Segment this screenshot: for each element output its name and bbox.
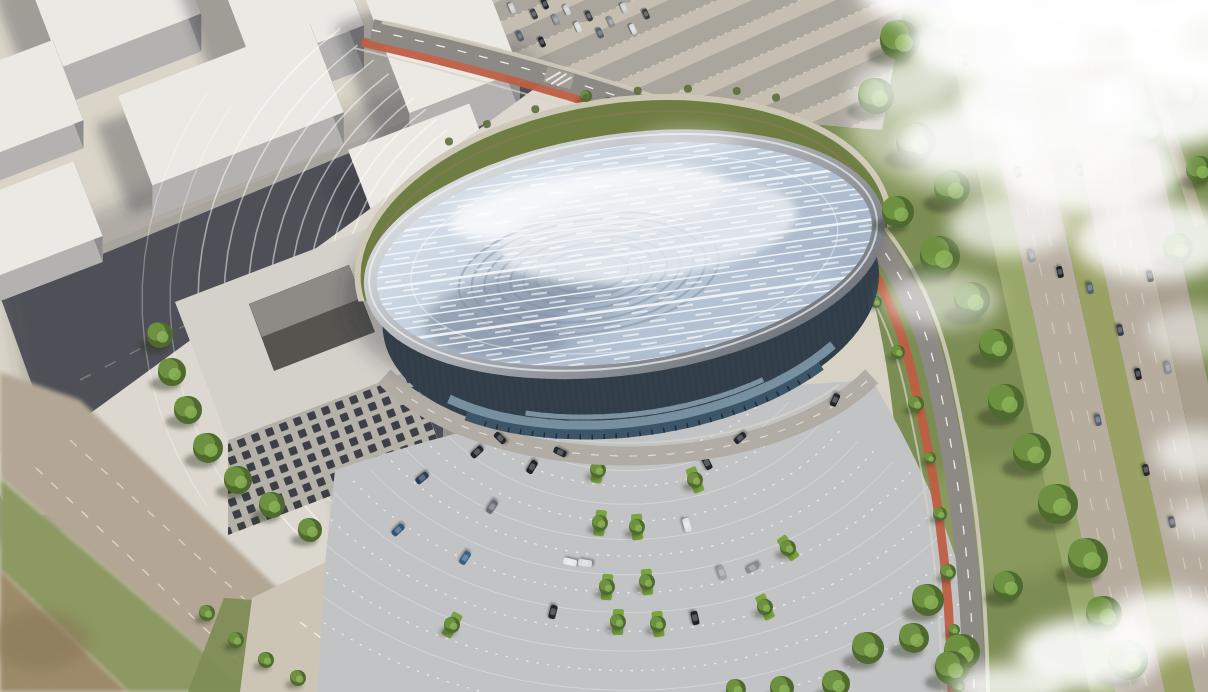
circle-shape (169, 368, 182, 381)
architectural-rendering (0, 0, 1208, 692)
circle-shape (910, 634, 924, 648)
circle-shape (864, 643, 878, 657)
circle-shape (204, 444, 218, 458)
cloud (884, 272, 1000, 328)
circle-shape (1083, 552, 1101, 570)
circle-shape (234, 638, 241, 645)
circle-shape (763, 605, 770, 612)
circle-shape (605, 585, 612, 592)
circle-shape (296, 676, 303, 683)
circle-shape (946, 570, 953, 577)
circle-shape (935, 250, 953, 268)
circle-shape (875, 300, 880, 305)
circle-shape (307, 526, 318, 537)
circle-shape (1027, 446, 1044, 463)
circle-shape (693, 478, 700, 485)
circle-shape (833, 680, 846, 692)
circle-shape (635, 525, 642, 532)
circle-shape (992, 341, 1007, 356)
circle-shape (894, 207, 908, 221)
cloud (948, 196, 1072, 256)
circle-shape (616, 620, 623, 627)
circle-shape (269, 501, 281, 513)
circle-shape (1004, 582, 1018, 596)
circle-shape (953, 628, 958, 633)
circle-shape (264, 658, 271, 665)
circle-shape (914, 402, 921, 409)
circle-shape (656, 622, 663, 629)
cloud (636, 126, 740, 158)
circle-shape (1002, 397, 1018, 413)
circle-shape (645, 580, 652, 587)
circle-shape (598, 521, 605, 528)
rendering-stage (0, 0, 1208, 692)
circle-shape (924, 595, 938, 609)
circle-shape (185, 406, 198, 419)
circle-shape (157, 331, 169, 343)
circle-shape (786, 546, 793, 553)
cloud (850, 40, 1150, 200)
circle-shape (896, 350, 902, 356)
circle-shape (929, 456, 934, 461)
circle-shape (235, 476, 248, 489)
circle-shape (205, 611, 212, 618)
circle-shape (596, 468, 603, 475)
circle-shape (938, 512, 944, 518)
circle-shape (450, 623, 457, 630)
circle-shape (1053, 498, 1071, 516)
